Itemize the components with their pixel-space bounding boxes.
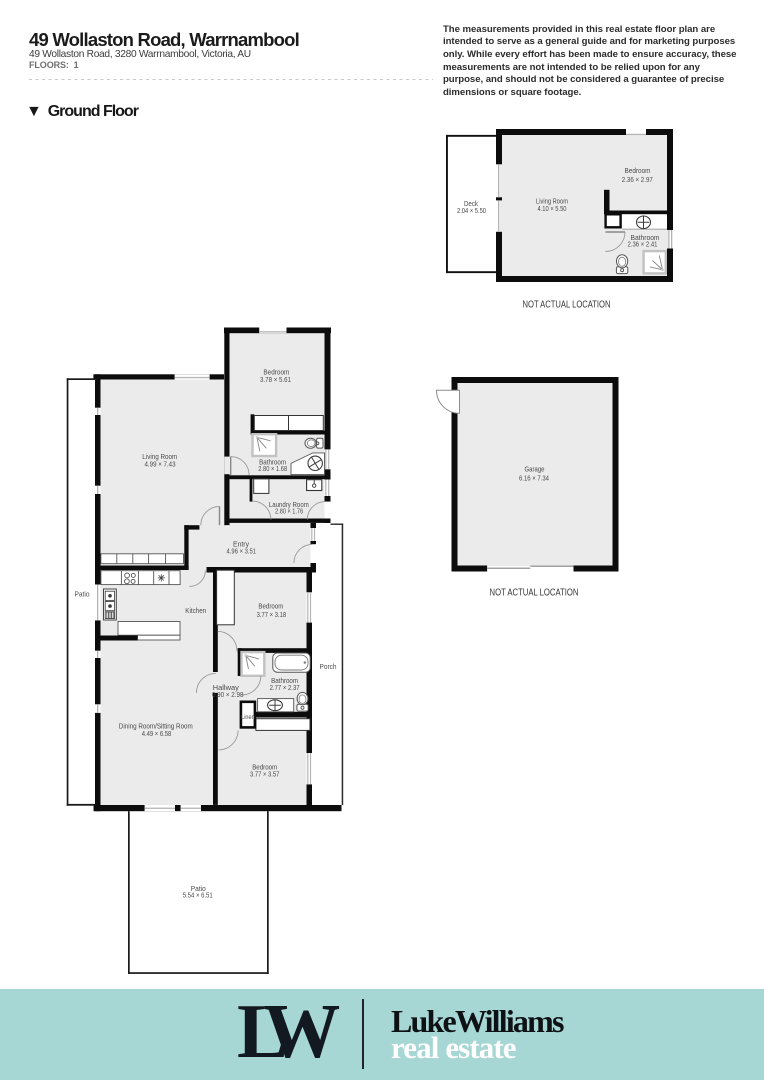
svg-text:2.36 × 2.97: 2.36 × 2.97 bbox=[622, 175, 653, 184]
svg-text:4.10 × 5.50: 4.10 × 5.50 bbox=[538, 204, 567, 213]
svg-text:4.99 × 7.43: 4.99 × 7.43 bbox=[145, 459, 176, 468]
svg-text:NOT ACTUAL LOCATION: NOT ACTUAL LOCATION bbox=[523, 299, 611, 311]
svg-text:2.36 × 2.41: 2.36 × 2.41 bbox=[628, 240, 658, 249]
svg-text:3.77 × 3.57: 3.77 × 3.57 bbox=[250, 770, 280, 779]
svg-text:2.04 × 5.50: 2.04 × 5.50 bbox=[457, 206, 486, 215]
svg-text:Kitchen: Kitchen bbox=[185, 606, 206, 615]
svg-text:Porch: Porch bbox=[320, 662, 337, 671]
svg-text:2.77 × 2.37: 2.77 × 2.37 bbox=[270, 683, 300, 692]
svg-text:Patio: Patio bbox=[75, 590, 90, 599]
svg-text:4.49 × 6.58: 4.49 × 6.58 bbox=[142, 729, 172, 738]
svg-text:2.80 × 1.68: 2.80 × 1.68 bbox=[258, 464, 287, 473]
svg-text:6.16 × 7.34: 6.16 × 7.34 bbox=[519, 474, 549, 483]
svg-text:4.96 × 3.51: 4.96 × 3.51 bbox=[227, 547, 257, 556]
svg-text:2.80 × 1.76: 2.80 × 1.76 bbox=[275, 507, 303, 516]
svg-text:3.78 × 5.61: 3.78 × 5.61 bbox=[260, 375, 291, 384]
svg-text:0.90 × 2.98: 0.90 × 2.98 bbox=[212, 690, 244, 699]
svg-text:5.54 × 6.51: 5.54 × 6.51 bbox=[183, 891, 213, 900]
svg-text:NOT ACTUAL LOCATION: NOT ACTUAL LOCATION bbox=[490, 586, 579, 598]
svg-text:Linen: Linen bbox=[241, 714, 255, 721]
svg-text:Garage: Garage bbox=[525, 465, 545, 474]
svg-text:3.77 × 3.18: 3.77 × 3.18 bbox=[257, 610, 287, 619]
